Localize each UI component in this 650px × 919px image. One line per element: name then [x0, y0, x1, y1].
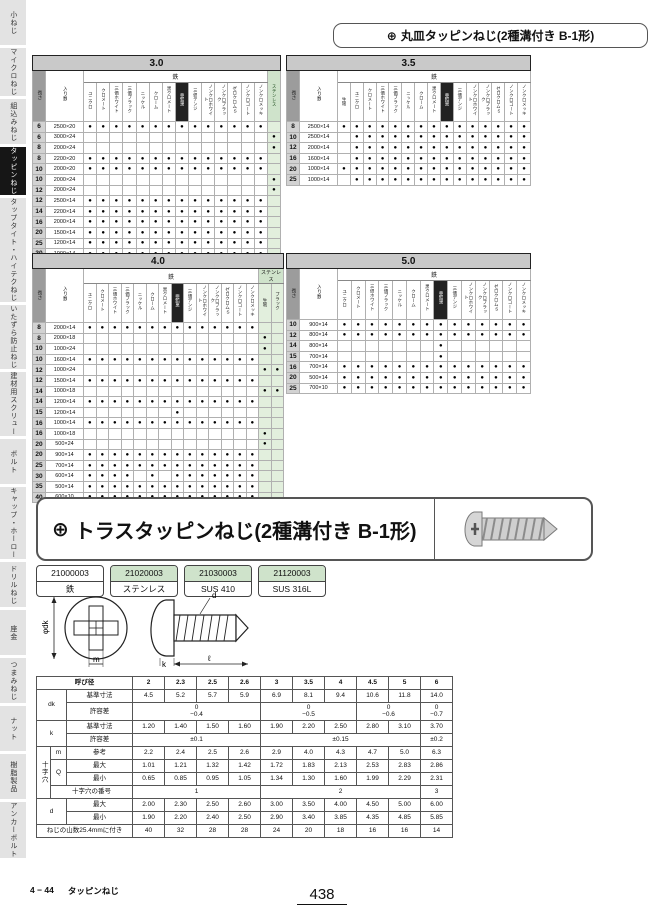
availability-dot: ●: [254, 153, 267, 164]
dim-cell: 2.20: [165, 811, 197, 824]
availability-dot: ●: [228, 164, 241, 175]
availability-dot: ●: [503, 320, 517, 331]
availability-dot: ●: [123, 217, 136, 228]
empty-cell: [134, 439, 147, 450]
availability-dot: ●: [376, 164, 389, 175]
page-title-text: 丸皿タッピンねじ(2種溝付き B-1形): [401, 27, 594, 44]
availability-dot: ●: [505, 132, 518, 143]
length-value: 16: [287, 153, 300, 164]
dim-cell: 参考: [67, 746, 133, 759]
availability-dot: ●: [363, 174, 376, 185]
availability-dot: ●: [376, 132, 389, 143]
availability-dot: ●: [196, 375, 209, 386]
empty-cell: [246, 344, 259, 355]
availability-dot: ●: [415, 164, 428, 175]
dim-header-cell: 2.5: [197, 677, 229, 690]
spec-table-5.0: 5.0長さ入り数鉄ユニクロクロメート三価ホワイト三価ブラックニッケルクローム黒ク…: [286, 253, 531, 394]
availability-dot: ●: [109, 418, 122, 429]
footer-section-label: タッピンねじ: [68, 885, 119, 897]
availability-dot: ●: [406, 383, 420, 394]
length-value: 8: [33, 333, 46, 344]
dim-cell: 0.95: [197, 772, 229, 785]
availability-dot: ●: [475, 320, 489, 331]
availability-dot: ●: [123, 206, 136, 217]
availability-dot: ●: [402, 164, 415, 175]
empty-cell: [209, 407, 222, 418]
availability-dot: ●: [518, 122, 531, 133]
dim-cell: 1.90: [261, 720, 293, 733]
availability-dot: ●: [434, 341, 448, 352]
availability-dot: ●: [517, 362, 531, 373]
page-title: ⊕ 丸皿タッピンねじ(2種溝付き B-1形): [333, 23, 648, 48]
availability-dot: ●: [136, 206, 149, 217]
quantity-value: 2200×20: [46, 153, 84, 164]
availability-dot: ●: [228, 122, 241, 133]
empty-cell: [259, 354, 272, 365]
availability-dot: ●: [241, 238, 254, 249]
finish-header: ユニクロ: [84, 284, 97, 323]
availability-dot: ●: [171, 375, 184, 386]
availability-dot: ●: [434, 320, 448, 331]
sidebar-item[interactable]: 小ねじ: [0, 0, 26, 45]
availability-dot: ●: [462, 362, 476, 373]
availability-dot: ●: [146, 397, 159, 408]
availability-dot: ●: [466, 122, 479, 133]
sidebar-item[interactable]: 座金: [0, 610, 26, 655]
empty-cell: [184, 333, 197, 344]
availability-dot: ●: [479, 164, 492, 175]
empty-cell: [171, 386, 184, 397]
empty-cell: [134, 407, 147, 418]
availability-dot: ●: [109, 460, 122, 471]
availability-dot: ●: [109, 481, 122, 492]
finish-header: ニッケル: [136, 83, 149, 122]
availability-dot: ●: [162, 153, 175, 164]
availability-dot: ●: [209, 450, 222, 461]
empty-cell: [271, 333, 284, 344]
availability-dot: ●: [518, 164, 531, 175]
availability-dot: ●: [84, 164, 97, 175]
availability-dot: ●: [379, 383, 393, 394]
availability-dot: ●: [134, 375, 147, 386]
empty-cell: [136, 143, 149, 154]
empty-cell: [162, 132, 175, 143]
finish-header: ニッケル: [134, 284, 147, 323]
availability-dot: ●: [393, 362, 407, 373]
availability-dot: ●: [234, 481, 247, 492]
dim-cell: 4.5: [133, 690, 165, 703]
sidebar-item[interactable]: タッピンねじ: [0, 147, 26, 195]
dimension-table: 呼び径22.32.52.633.544.556dk基準寸法4.55.25.75.…: [36, 676, 453, 838]
length-header: 長さ: [287, 269, 300, 320]
availability-dot: ●: [402, 143, 415, 154]
length-value: 10: [33, 174, 46, 185]
length-value: 20: [33, 439, 46, 450]
availability-dot: ●: [365, 320, 379, 331]
availability-dot: ●: [492, 174, 505, 185]
dim-cell: 20: [293, 824, 325, 837]
dim-cell: 9.4: [325, 690, 357, 703]
sidebar-item[interactable]: 樹脂製品: [0, 754, 26, 799]
quantity-header: 入り数: [46, 71, 84, 122]
dim-cell: 32: [165, 824, 197, 837]
footer: 4 − 44 タッピンねじ: [30, 885, 119, 897]
availability-dot: ●: [241, 122, 254, 133]
empty-cell: [159, 365, 172, 376]
quantity-value: 2500×14: [300, 122, 338, 133]
empty-cell: [503, 341, 517, 352]
part-number-code: 21120003: [259, 566, 325, 582]
availability-dot: ●: [149, 164, 162, 175]
dim-header-cell: 6: [421, 677, 453, 690]
availability-dot: ●: [376, 174, 389, 185]
sidebar-item[interactable]: ナット: [0, 706, 26, 751]
length-value: 10: [287, 320, 300, 331]
availability-dot: ●: [121, 397, 134, 408]
availability-dot: ●: [109, 450, 122, 461]
availability-dot: ●: [189, 206, 202, 217]
availability-dot: ●: [149, 238, 162, 249]
empty-cell: [234, 365, 247, 376]
empty-cell: [228, 185, 241, 196]
availability-dot: ●: [420, 383, 434, 394]
sidebar: 小ねじマイクロねじ組込みねじタッピンねじタップタイト・ハイテクねじいたずら防止ね…: [0, 0, 26, 858]
table-row: 121500×14●●●●●●●●●●●●●●: [33, 375, 284, 386]
table-row: 141000×18●●: [33, 386, 284, 397]
quantity-header: 入り数: [300, 71, 338, 122]
empty-cell: [123, 185, 136, 196]
dim-cell: 1.60: [325, 772, 357, 785]
availability-dot: ●: [448, 372, 462, 383]
empty-cell: [267, 217, 280, 228]
availability-dot: ●: [379, 372, 393, 383]
availability-dot: ●: [215, 238, 228, 249]
dim-cell: 5.00: [389, 798, 421, 811]
dim-cell: 1.42: [229, 759, 261, 772]
empty-cell: [259, 471, 272, 482]
empty-cell: [259, 407, 272, 418]
table-row: 10900×14●●●●●●●●●●●●●●: [287, 320, 531, 331]
empty-cell: [189, 143, 202, 154]
availability-dot: ●: [246, 418, 259, 429]
availability-dot: ●: [96, 481, 109, 492]
quantity-value: 900×14: [46, 450, 84, 461]
empty-cell: [271, 354, 284, 365]
availability-dot: ●: [121, 418, 134, 429]
availability-dot: ●: [365, 362, 379, 373]
empty-cell: [109, 344, 122, 355]
availability-dot: ●: [350, 132, 363, 143]
length-header: 長さ: [33, 269, 46, 323]
finish-header: ゼロクロムS: [492, 83, 505, 122]
sidebar-item-label: ボルト: [9, 450, 17, 474]
finish-header: ノンクロメッキ: [254, 83, 267, 122]
dim-cell: 2.40: [197, 811, 229, 824]
empty-cell: [96, 428, 109, 439]
finish-header: ノンクロコート: [234, 284, 247, 323]
finish-header: 三価ホワイト: [109, 284, 122, 323]
availability-dot: ●: [215, 227, 228, 238]
availability-dot: ●: [389, 122, 402, 133]
quantity-value: 1000×18: [46, 428, 84, 439]
sidebar-item[interactable]: キャップ・ホーロー: [0, 487, 26, 559]
dim-cell: 十字穴の番号: [51, 785, 133, 798]
empty-cell: [393, 341, 407, 352]
empty-cell: [267, 196, 280, 207]
dim-cell: 4.50: [357, 798, 389, 811]
availability-dot: ●: [338, 330, 352, 341]
availability-dot: ●: [489, 383, 503, 394]
length-value: 20: [287, 164, 300, 175]
sidebar-item[interactable]: つまみねじ: [0, 658, 26, 703]
empty-cell: [184, 365, 197, 376]
dim-cell: 1.34: [261, 772, 293, 785]
empty-cell: [121, 439, 134, 450]
empty-cell: [110, 143, 123, 154]
quantity-value: 600×14: [46, 471, 84, 482]
empty-cell: [110, 132, 123, 143]
empty-cell: [84, 143, 97, 154]
length-value: 10: [33, 354, 46, 365]
availability-dot: ●: [389, 132, 402, 143]
quantity-value: 2000×20: [46, 164, 84, 175]
finish-header: 三価デンジ: [189, 83, 202, 122]
availability-dot: ●: [171, 471, 184, 482]
availability-dot: ●: [189, 217, 202, 228]
availability-dot: ●: [365, 330, 379, 341]
empty-cell: [517, 341, 531, 352]
dim-cell: 5.0: [389, 746, 421, 759]
quantity-value: 1600×14: [300, 153, 338, 164]
empty-cell: [97, 185, 110, 196]
part-number-material: SUS 316L: [259, 582, 325, 597]
availability-dot: ●: [479, 122, 492, 133]
availability-dot: ●: [338, 383, 352, 394]
availability-dot: ●: [121, 323, 134, 334]
availability-dot: ●: [134, 354, 147, 365]
empty-cell: [96, 386, 109, 397]
dim-header-cell: 3: [261, 677, 293, 690]
table-row: 122500×14●●●●●●●●●●●●●●: [33, 196, 281, 207]
availability-dot: ●: [196, 450, 209, 461]
empty-cell: [134, 365, 147, 376]
sidebar-item[interactable]: 組込みねじ: [0, 99, 26, 144]
finish-header: 黒クロメート: [428, 83, 441, 122]
sidebar-item[interactable]: 建材用スクリュー: [0, 372, 26, 436]
availability-dot: ●: [202, 196, 215, 207]
quantity-value: 500×14: [46, 481, 84, 492]
dim-cell: 6.9: [261, 690, 293, 703]
empty-cell: [149, 185, 162, 196]
empty-cell: [175, 185, 188, 196]
availability-dot: ●: [466, 174, 479, 185]
size-table: 5.0長さ入り数鉄ユニクロクロメート三価ホワイト三価ブラックニッケルクローム黒ク…: [286, 253, 531, 394]
dim-cell: 2.5: [197, 746, 229, 759]
length-value: 8: [33, 153, 46, 164]
empty-cell: [184, 386, 197, 397]
table-row: 161000×18●: [33, 428, 284, 439]
empty-cell: [267, 238, 280, 249]
table-row: 62500×20●●●●●●●●●●●●●●: [33, 122, 281, 133]
availability-dot: ●: [202, 227, 215, 238]
dim-cell: 6.00: [421, 798, 453, 811]
dim-cell: 0 −0.4: [133, 703, 261, 721]
quantity-value: 800×14: [300, 341, 338, 352]
quantity-value: 1000×24: [46, 365, 84, 376]
dim-cell: 1.30: [293, 772, 325, 785]
availability-dot: ●: [84, 196, 97, 207]
availability-dot: ●: [97, 238, 110, 249]
table-row: 162000×14●●●●●●●●●●●●●●: [33, 217, 281, 228]
finish-header: ニッケル: [393, 281, 407, 320]
finish-header: ノンクロホワイト: [462, 281, 476, 320]
table-row: 201000×14●●●●●●●●●●●●●●●: [287, 164, 531, 175]
empty-cell: [189, 174, 202, 185]
dim-cell: 2.50: [197, 798, 229, 811]
availability-dot: ●: [228, 227, 241, 238]
empty-cell: [259, 418, 272, 429]
finish-header: クロメート: [351, 281, 365, 320]
availability-dot: ●: [428, 143, 441, 154]
quantity-header: 入り数: [300, 269, 338, 320]
dim-cell: 2.80: [357, 720, 389, 733]
empty-cell: [221, 407, 234, 418]
empty-cell: [234, 407, 247, 418]
availability-dot: ●: [420, 330, 434, 341]
table-row: 102000×24●: [33, 174, 281, 185]
sidebar-item[interactable]: タップタイト・ハイテクねじ: [0, 198, 26, 302]
sidebar-item[interactable]: アンカーボルト: [0, 802, 26, 858]
availability-dot: ●: [189, 153, 202, 164]
availability-dot: ●: [505, 153, 518, 164]
empty-cell: [259, 450, 272, 461]
quantity-value: 700×10: [300, 383, 338, 394]
page-number: 438: [297, 886, 347, 905]
dim-cell: Q: [51, 759, 67, 785]
length-value: 6: [33, 122, 46, 133]
finish-header: ユニクロ: [84, 83, 97, 122]
empty-cell: [96, 439, 109, 450]
empty-cell: [338, 132, 351, 143]
availability-dot: ●: [149, 217, 162, 228]
empty-cell: [271, 439, 284, 450]
availability-dot: ●: [234, 460, 247, 471]
availability-dot: ●: [440, 174, 453, 185]
availability-dot: ●: [228, 196, 241, 207]
availability-dot: ●: [136, 164, 149, 175]
availability-dot: ●: [175, 196, 188, 207]
sidebar-item[interactable]: マイクロねじ: [0, 48, 26, 96]
dim-cell: 2.29: [389, 772, 421, 785]
empty-cell: [267, 227, 280, 238]
availability-dot: ●: [97, 122, 110, 133]
part-number-box[interactable]: 21120003SUS 316L: [258, 565, 326, 597]
availability-dot: ●: [84, 481, 97, 492]
availability-dot: ●: [434, 362, 448, 373]
length-value: 8: [33, 143, 46, 154]
availability-dot: ●: [149, 122, 162, 133]
empty-cell: [420, 341, 434, 352]
empty-cell: [171, 344, 184, 355]
dim-cell: 2.13: [325, 759, 357, 772]
sidebar-item-label: 組込みねじ: [9, 102, 17, 142]
part-number-code: 21020003: [111, 566, 177, 582]
availability-dot: ●: [393, 320, 407, 331]
availability-dot: ●: [389, 174, 402, 185]
empty-cell: [517, 351, 531, 362]
finish-header: 亜鉛黒: [175, 83, 188, 122]
empty-cell: [254, 132, 267, 143]
empty-cell: [84, 439, 97, 450]
availability-dot: ●: [196, 397, 209, 408]
finish-header: 黒クロメート: [420, 281, 434, 320]
quantity-value: 2000×24: [46, 143, 84, 154]
availability-dot: ●: [505, 164, 518, 175]
availability-dot: ●: [448, 383, 462, 394]
dim-cell: 最大: [67, 759, 133, 772]
sidebar-item[interactable]: いたずら防止ねじ: [0, 305, 26, 369]
length-value: 25: [287, 383, 300, 394]
empty-cell: [121, 428, 134, 439]
sidebar-item[interactable]: ボルト: [0, 439, 26, 484]
finish-header: 亜鉛黒: [434, 281, 448, 320]
finish-header: 亜鉛黒: [171, 284, 184, 323]
catalog-page: 小ねじマイクロねじ組込みねじタッピンねじタップタイト・ハイテクねじいたずら防止ね…: [0, 0, 650, 919]
availability-dot: ●: [428, 174, 441, 185]
availability-dot: ●: [489, 320, 503, 331]
empty-cell: [123, 174, 136, 185]
empty-cell: [241, 185, 254, 196]
availability-dot: ●: [338, 164, 351, 175]
availability-dot: ●: [241, 217, 254, 228]
finish-header: 黒クロメート: [162, 83, 175, 122]
empty-cell: [134, 344, 147, 355]
footer-section-number: 4 − 44: [30, 885, 54, 897]
availability-dot: ●: [246, 397, 259, 408]
availability-dot: ●: [97, 206, 110, 217]
availability-dot: ●: [184, 460, 197, 471]
empty-cell: [475, 341, 489, 352]
quantity-value: 700×14: [300, 351, 338, 362]
sidebar-item-label: 樹脂製品: [9, 761, 17, 793]
empty-cell: [134, 471, 147, 482]
availability-dot: ●: [406, 362, 420, 373]
availability-dot: ●: [171, 481, 184, 492]
availability-dot: ●: [171, 323, 184, 334]
availability-dot: ●: [162, 217, 175, 228]
finish-header: クロメート: [363, 83, 376, 122]
availability-dot: ●: [379, 320, 393, 331]
empty-cell: [184, 439, 197, 450]
empty-cell: [96, 333, 109, 344]
availability-dot: ●: [259, 439, 272, 450]
empty-cell: [259, 397, 272, 408]
availability-dot: ●: [466, 143, 479, 154]
length-value: 10: [33, 164, 46, 175]
dim-cell: 3.70: [421, 720, 453, 733]
dim-cell: 2.50: [229, 811, 261, 824]
empty-cell: [246, 333, 259, 344]
table-row: 82000×24●: [33, 143, 281, 154]
availability-dot: ●: [209, 323, 222, 334]
stainless-finish-header: 生地: [259, 284, 272, 323]
sidebar-item[interactable]: ドリルねじ: [0, 562, 26, 607]
availability-dot: ●: [241, 153, 254, 164]
dim-cell: 40: [133, 824, 165, 837]
availability-dot: ●: [415, 122, 428, 133]
availability-dot: ●: [365, 372, 379, 383]
dim-header-cell: 2.3: [165, 677, 197, 690]
